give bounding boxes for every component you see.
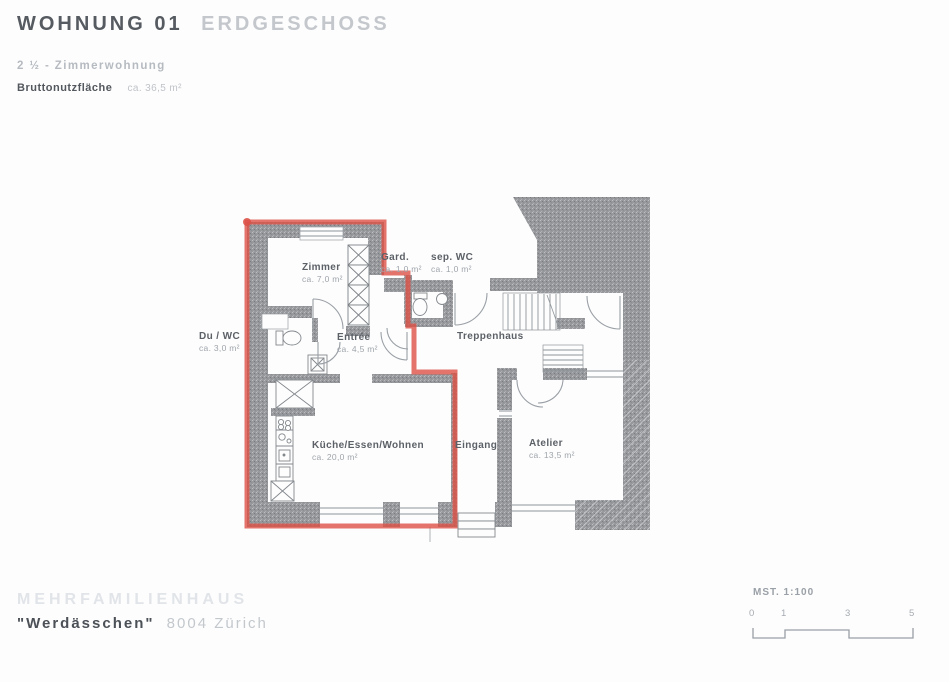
door-apartment-entry (381, 332, 407, 360)
scale-label: MST. 1:100 (753, 587, 814, 598)
scale-tick-1: 1 (781, 608, 786, 619)
room-name: Eingang (455, 440, 497, 451)
room-label-atelier: Atelier ca. 13,5 m² (529, 438, 575, 460)
door-atelier (538, 380, 563, 403)
scale-tick-3: 3 (845, 608, 850, 619)
room-name: Treppenhaus (457, 331, 524, 342)
door-gard (387, 328, 408, 349)
room-name: sep. WC (431, 252, 473, 263)
room-label-du-wc: Du / WC ca. 3,0 m² (199, 331, 240, 353)
basin-sepwc (437, 294, 448, 305)
scale-tick-5: 5 (909, 608, 914, 619)
room-label-sep-wc: sep. WC ca. 1,0 m² (431, 252, 473, 274)
room-label-entree: Entrée ca. 4,5 m² (337, 332, 378, 354)
room-area: ca. 7,0 m² (302, 275, 343, 284)
room-area: ca. 1,0 m² (431, 265, 473, 274)
room-label-gard: Gard. ca. 1,0 m² (381, 252, 422, 274)
room-area: ca. 4,5 m² (337, 345, 378, 354)
apartment-title: WOHNUNG 01 (17, 13, 183, 35)
room-name: Entrée (337, 332, 378, 343)
kitchen-counter (276, 416, 293, 481)
building-location: 8004 Zürich (167, 615, 268, 632)
project-title: MEHRFAMILIENHAUS (17, 591, 248, 609)
room-area: ca. 1,0 m² (381, 265, 422, 274)
floor-title: ERDGESCHOSS (201, 13, 390, 35)
room-label-eingang: Eingang (455, 440, 497, 451)
scale-bar (753, 628, 913, 638)
toilet-duwc (276, 331, 301, 345)
door-treppenhaus-upper (455, 293, 487, 325)
room-area: ca. 20,0 m² (312, 453, 424, 462)
room-area: ca. 3,0 m² (199, 344, 240, 353)
kitchen-cupboard (271, 481, 294, 501)
door-treppenhaus-right (587, 296, 620, 329)
shower-box (276, 380, 313, 408)
page-title: WOHNUNG 01 ERDGESCHOSS (17, 13, 390, 36)
room-label-zimmer: Zimmer ca. 7,0 m² (302, 262, 343, 284)
room-name: Atelier (529, 438, 575, 449)
room-label-treppenhaus: Treppenhaus (457, 331, 524, 342)
room-name: Gard. (381, 252, 422, 263)
room-name: Zimmer (302, 262, 343, 273)
room-name: Du / WC (199, 331, 240, 342)
closet-shaft (348, 245, 369, 325)
scale-tick-0: 0 (749, 608, 754, 619)
building-name: "Werdässchen" (17, 615, 155, 632)
toilet-sepwc (413, 293, 427, 316)
apartment-type: 2 ½ - Zimmerwohnung (17, 60, 166, 72)
building-line: "Werdässchen" 8004 Zürich (17, 615, 268, 632)
room-area: ca. 13,5 m² (529, 451, 575, 460)
gross-area-label: Bruttonutzfläche (17, 82, 112, 94)
room-name: Küche/Essen/Wohnen (312, 440, 424, 451)
walls (247, 197, 650, 530)
entrance-steps (458, 513, 495, 537)
room-label-kueche: Küche/Essen/Wohnen ca. 20,0 m² (312, 440, 424, 462)
gross-area: Bruttonutzfläche ca. 36,5 m² (17, 82, 182, 94)
gross-area-value: ca. 36,5 m² (127, 83, 181, 94)
